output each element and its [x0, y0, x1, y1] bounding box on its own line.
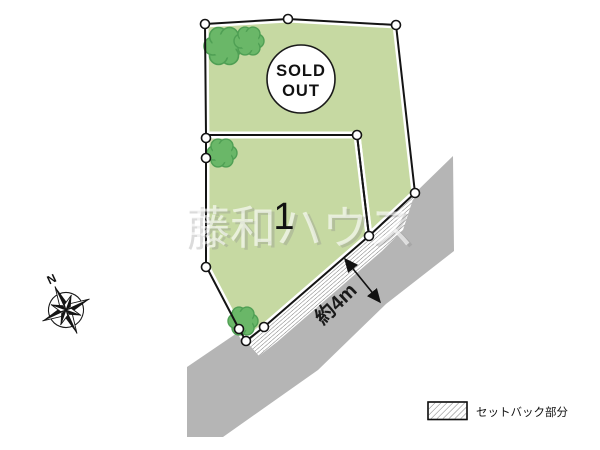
legend-setback-label: セットバック部分 — [476, 405, 568, 419]
boundary-marker — [260, 323, 269, 332]
sold-out-line2: OUT — [282, 82, 320, 100]
boundary-marker — [235, 325, 244, 334]
tree-icon — [207, 139, 237, 167]
sold-out-line1: SOLD — [276, 62, 326, 80]
boundary-marker — [202, 154, 211, 163]
watermark: 藤和ハウス 藤和ハウス — [184, 202, 417, 256]
parcel-1-number: 1 — [273, 196, 294, 238]
boundary-marker — [202, 134, 211, 143]
boundary-marker — [411, 189, 420, 198]
boundary-marker — [201, 20, 210, 29]
boundary-marker — [284, 15, 293, 24]
tree-icon — [234, 27, 264, 55]
boundary-marker — [202, 263, 211, 272]
watermark-text: 藤和ハウス — [184, 202, 414, 254]
boundary-marker — [242, 337, 251, 346]
site-plan-map: 藤和ハウス 藤和ハウス SOLD OUT 1 約4m N セットバック部分 — [0, 0, 600, 450]
boundary-marker — [353, 131, 362, 140]
boundary-marker — [392, 21, 401, 30]
legend-setback-swatch-hatch — [428, 402, 467, 420]
sold-out-badge: SOLD OUT — [267, 45, 335, 113]
